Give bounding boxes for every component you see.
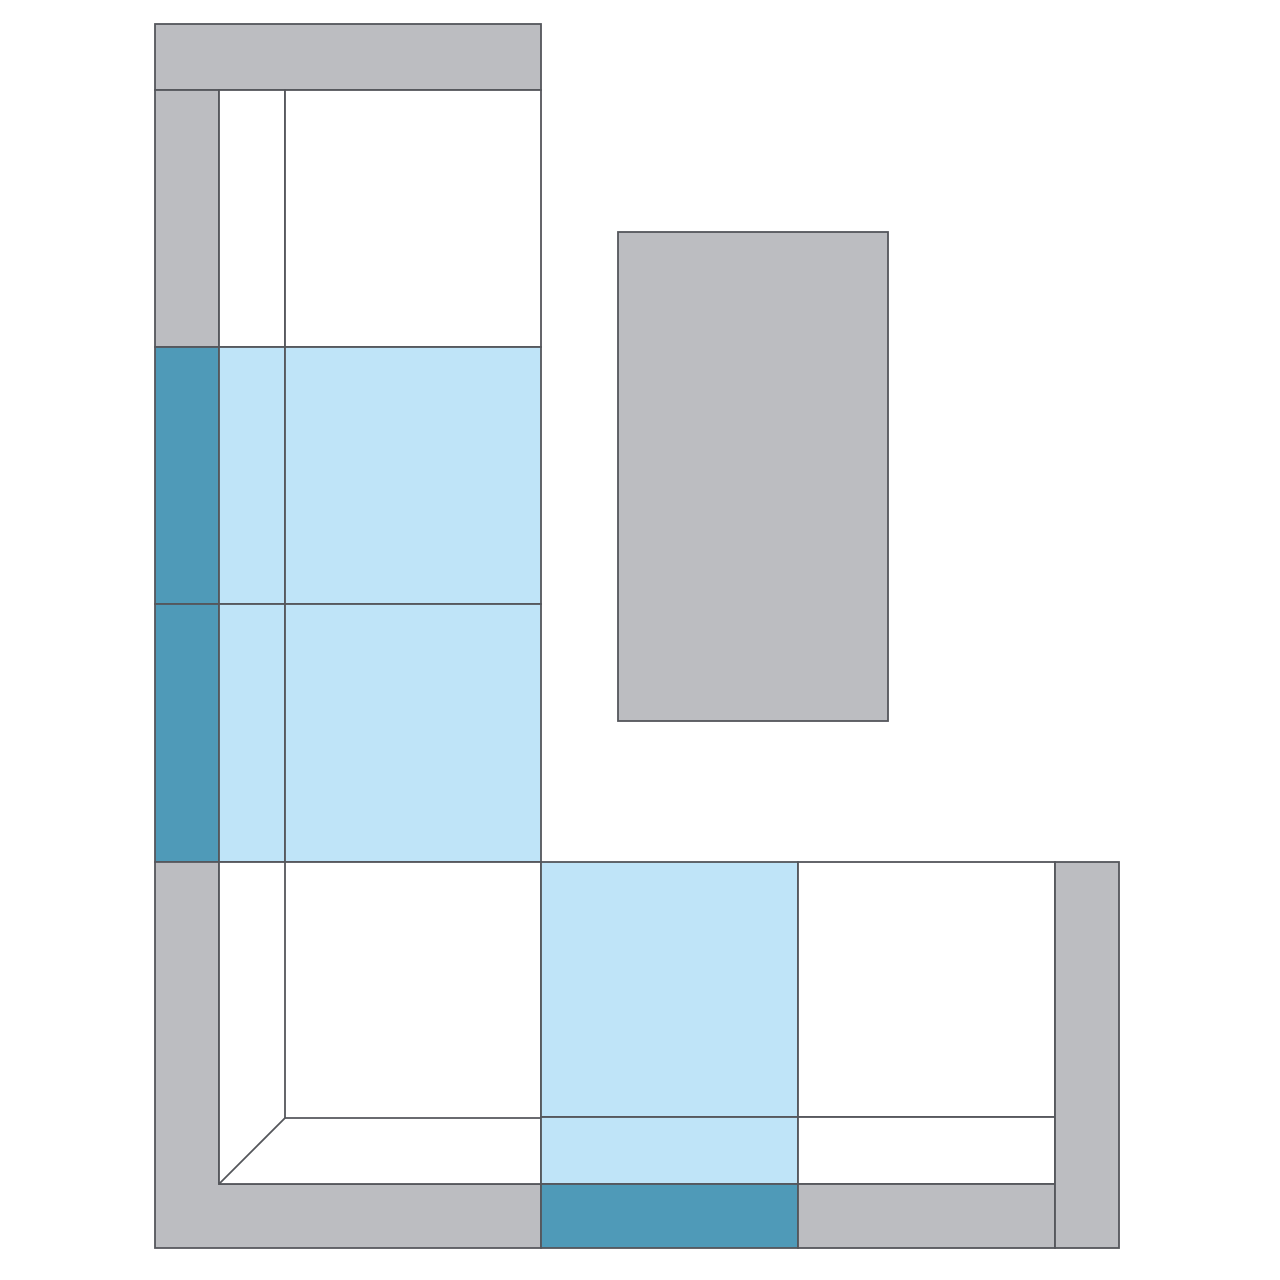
module-a2-seat-selected[interactable]	[285, 347, 541, 604]
module-a3-seat-edge-selected[interactable]	[219, 604, 285, 862]
top-armrest	[155, 24, 541, 90]
module-a3-backrest-selected[interactable]	[155, 604, 219, 862]
module-b1-seat-edge-selected[interactable]	[541, 1117, 798, 1184]
module-a2-seat-edge-selected[interactable]	[219, 347, 285, 604]
module-a1-backrest[interactable]	[155, 90, 219, 347]
module-b2-backrest[interactable]	[798, 1184, 1055, 1248]
module-a1-seat-edge[interactable]	[219, 90, 285, 347]
module-b2-seat-edge[interactable]	[798, 1117, 1055, 1184]
module-a3-seat-selected[interactable]	[285, 604, 541, 862]
sofa-plan-diagram	[0, 0, 1280, 1280]
sofa-planner-canvas	[0, 0, 1280, 1280]
module-b1-backrest-selected[interactable]	[541, 1184, 798, 1248]
right-armrest	[1055, 862, 1119, 1248]
module-a1-seat[interactable]	[285, 90, 541, 347]
module-b1-seat-selected[interactable]	[541, 862, 798, 1117]
module-b2-seat[interactable]	[798, 862, 1055, 1117]
ottoman[interactable]	[618, 232, 888, 721]
module-a2-backrest-selected[interactable]	[155, 347, 219, 604]
